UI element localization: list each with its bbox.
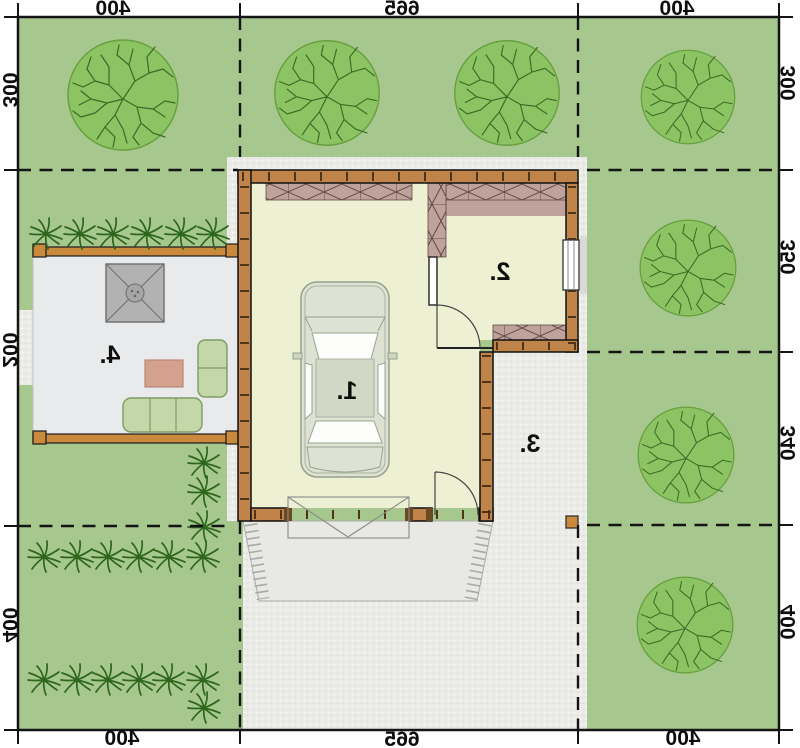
site-plan-page: 400 665 400 400 665 400 300 200 400 300 … — [0, 0, 800, 748]
window — [563, 240, 579, 290]
room-label-3: 3. — [520, 430, 541, 458]
insulation-hatch — [266, 183, 412, 200]
window-sill — [580, 236, 587, 294]
ramp — [243, 521, 493, 601]
insulation-hatch — [446, 183, 566, 200]
site-plan-canvas: 400 665 400 400 665 400 300 200 400 300 … — [0, 0, 800, 748]
tree-icon — [637, 577, 733, 673]
insulation-hatch — [428, 183, 446, 257]
dimension-label-right-350: 350 — [777, 239, 800, 274]
walkway-top — [227, 157, 587, 170]
room-label-1: 1. — [337, 377, 358, 405]
tree-icon — [641, 50, 735, 144]
wall-south-segment — [251, 508, 288, 521]
wall-north — [238, 170, 578, 183]
car-hood — [307, 447, 383, 472]
dimension-label-left-200: 200 — [0, 332, 21, 367]
dimension-label-top-mid: 665 — [384, 0, 419, 20]
room-4-patio — [33, 244, 239, 444]
dimension-label-left-300: 300 — [0, 72, 21, 107]
insulation-hatch — [493, 325, 566, 340]
pergola-beam — [33, 247, 238, 256]
interior-wall — [429, 257, 437, 305]
fence-post — [566, 516, 578, 528]
wall-room2-south — [493, 340, 578, 352]
pergola-post — [226, 431, 239, 444]
parasol-icon — [106, 264, 164, 322]
sofa — [123, 398, 202, 432]
room-label-2: 2. — [490, 258, 511, 286]
car-rear-window — [312, 333, 378, 359]
coffee-table — [145, 360, 183, 387]
tree-icon — [275, 41, 380, 146]
car-windshield — [308, 421, 382, 443]
wall-garage-east — [480, 352, 493, 521]
tree-icon — [455, 41, 560, 146]
dimension-label-top-right: 400 — [659, 0, 694, 20]
car-side-window — [378, 363, 385, 419]
wall-room2-east-segment — [566, 183, 578, 240]
dimension-label-bottom-right: 400 — [665, 727, 700, 748]
dimension-label-left-400: 400 — [0, 607, 21, 642]
dimension-label-right-400: 400 — [777, 604, 800, 639]
pergola-post — [33, 431, 46, 444]
pergola-beam — [33, 434, 238, 443]
dimension-label-right-340: 340 — [777, 425, 800, 460]
dimension-label-bottom-left: 400 — [104, 727, 139, 748]
car-mirror — [388, 353, 397, 359]
pergola-post — [226, 244, 239, 257]
dimension-label-top-left: 400 — [95, 0, 130, 20]
dimension-label-right-300: 300 — [777, 65, 800, 100]
car-side-window — [305, 363, 312, 419]
tree-icon — [640, 220, 736, 316]
car-mirror — [293, 353, 302, 359]
room-label-4: 4. — [100, 341, 121, 369]
dimension-label-bottom-mid: 665 — [384, 728, 419, 748]
wall-west — [238, 170, 251, 521]
tree-icon — [638, 407, 734, 503]
tree-icon — [68, 40, 178, 150]
